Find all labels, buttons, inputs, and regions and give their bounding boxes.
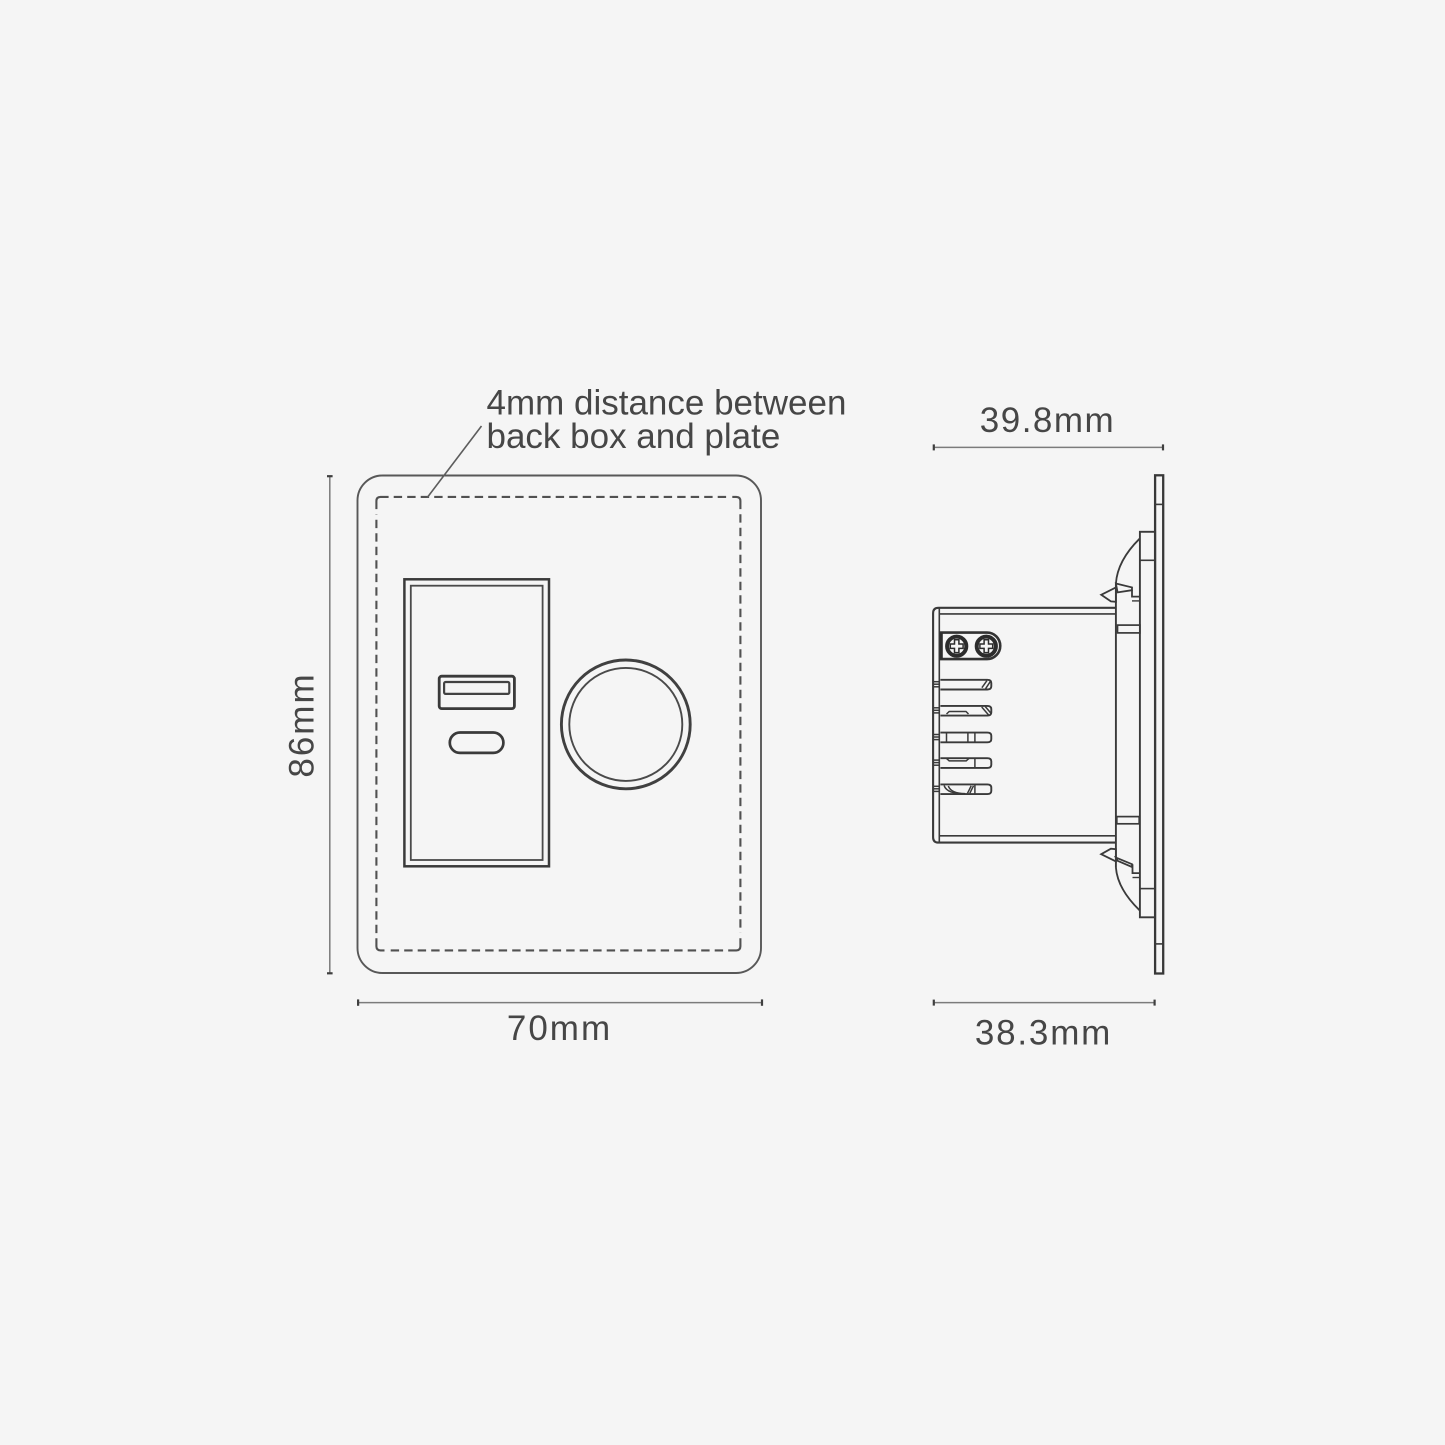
svg-text:39.8mm: 39.8mm <box>980 401 1115 440</box>
svg-text:back box and plate: back box and plate <box>487 417 781 456</box>
svg-text:38.3mm: 38.3mm <box>975 1013 1112 1052</box>
svg-text:86mm: 86mm <box>283 672 322 777</box>
svg-text:70mm: 70mm <box>507 1009 612 1048</box>
